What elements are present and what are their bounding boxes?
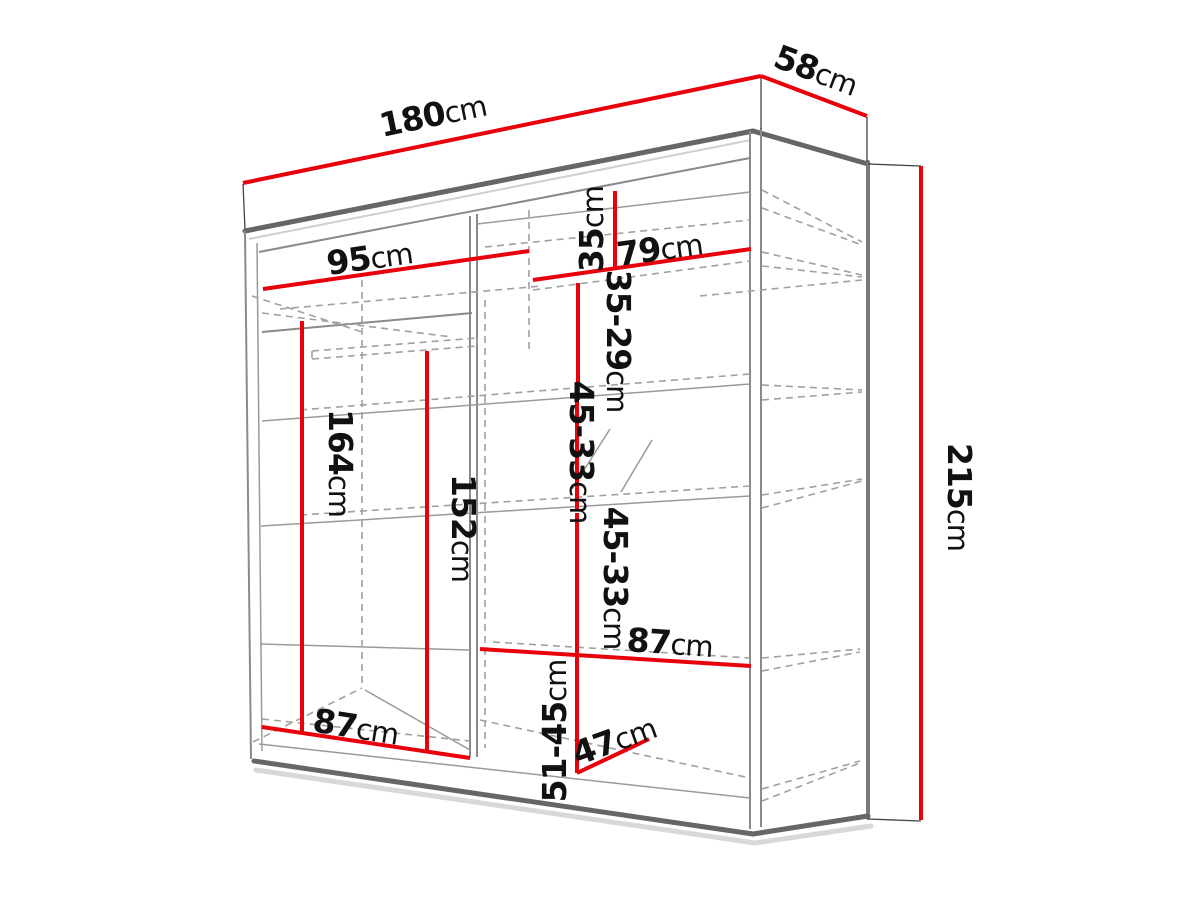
left-outer-edge — [245, 231, 251, 759]
dim-label-47: 47cm — [567, 707, 661, 773]
left-inner-edge — [257, 243, 262, 751]
dim-line-180 — [243, 76, 761, 183]
bottom-front-edge — [254, 761, 753, 834]
dashed-shelf-back-top-left — [280, 286, 542, 309]
dim-label-51-45: 51-45cm — [535, 660, 574, 803]
dim-label-215: 215cm — [940, 443, 979, 551]
dashed-recede-e1 — [762, 649, 860, 658]
hanging-rail-top — [312, 338, 477, 351]
dashed-recede-f1 — [762, 761, 860, 789]
dim-label-58: 58cm — [769, 37, 863, 104]
dim-label-35-29: 35-29cm — [599, 270, 638, 413]
dim-label-95: 95cm — [324, 232, 415, 283]
dim-label-45-33-upper: 45-33cm — [562, 381, 601, 524]
dim-label-35: 35cm — [572, 186, 611, 272]
tick-height-bottom — [868, 819, 921, 821]
diagram-canvas: 180cm 58cm 215cm 95cm 79cm 35cm 35-29cm … — [0, 0, 1200, 899]
extension-left-top — [243, 184, 245, 229]
mirror-mark-2 — [621, 440, 652, 492]
top-front-edge-highlight — [249, 140, 751, 239]
tick-height-top — [868, 164, 921, 166]
dashed-recede-d2 — [762, 481, 862, 508]
dashed-recede-c2 — [762, 392, 862, 400]
wardrobe-dimension-diagram: 180cm 58cm 215cm 95cm 79cm 35cm 35-29cm … — [0, 0, 1200, 899]
dashed-shelf-middle-1-back — [300, 374, 750, 410]
dim-label-152: 152cm — [444, 474, 483, 582]
dashed-recede-a1 — [762, 190, 862, 242]
dashed-recede-d1 — [762, 479, 862, 495]
dim-label-87-left: 87cm — [310, 701, 401, 753]
shelf-lower-left — [260, 644, 470, 650]
dim-label-79: 79cm — [614, 223, 705, 274]
dashed-recede-f2 — [762, 763, 860, 801]
top-front-edge — [245, 131, 753, 231]
dashed-recede-a2 — [762, 208, 862, 245]
top-right-edge — [753, 131, 868, 164]
shelf-top-left — [262, 313, 472, 332]
dim-label-164: 164cm — [321, 409, 360, 517]
dashed-recede-c1 — [762, 385, 862, 390]
hanging-rail-bottom — [312, 346, 477, 359]
dashed-recede-e2 — [762, 652, 860, 671]
dim-label-87-right: 87cm — [625, 620, 714, 665]
dashed-recede-b3 — [700, 280, 862, 296]
